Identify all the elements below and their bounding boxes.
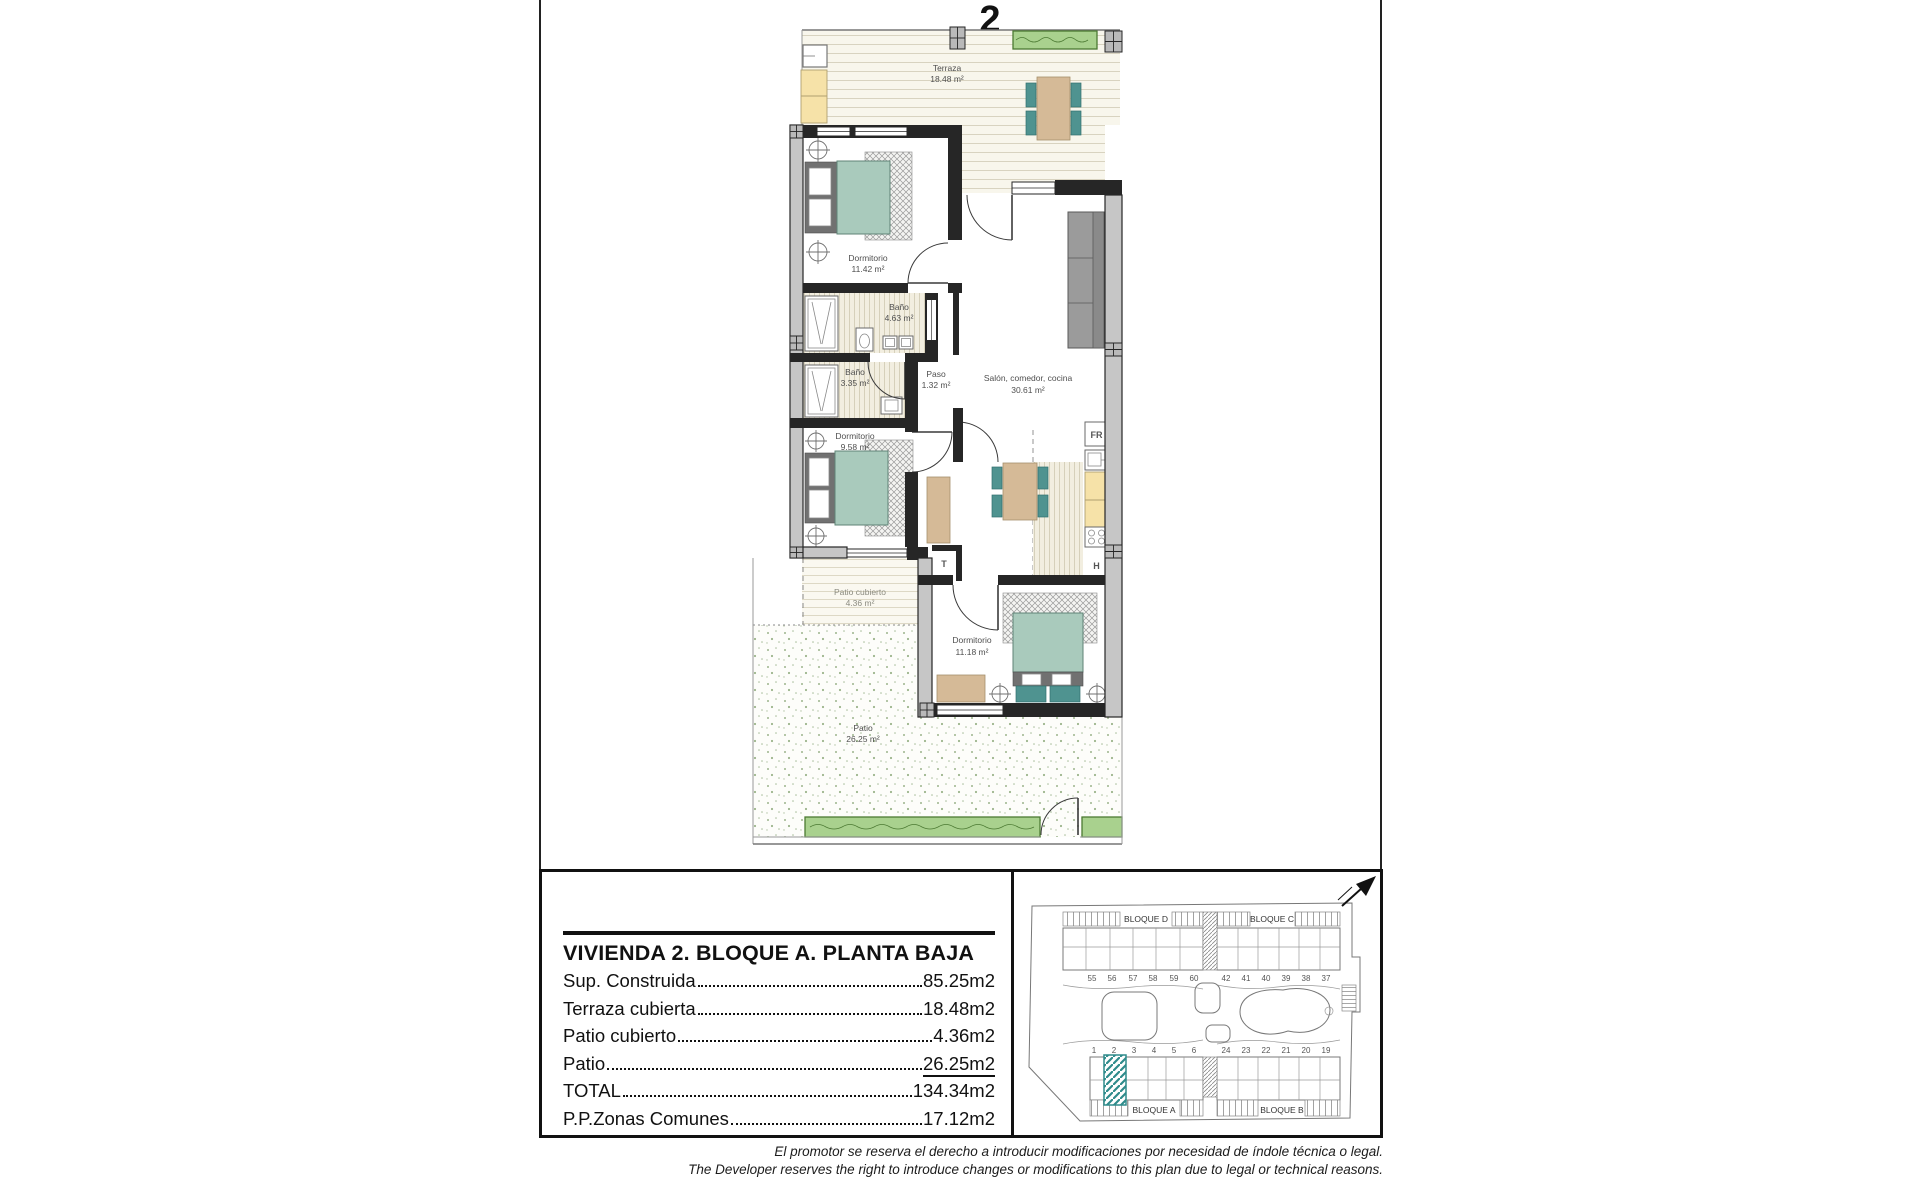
dotted-leader [678,1040,932,1042]
sofa [1068,212,1104,348]
row-label: P.P.Zonas Comunes [563,1108,729,1130]
bedroom3-door [953,585,998,630]
disclaimer-es: El promotor se reserva el derecho a intr… [640,1143,1383,1161]
bedroom-1: Dormitorio 11.42 m² [805,138,948,283]
dotted-leader [731,1123,922,1125]
living-room-label: Salón, comedor, cocina [984,373,1073,383]
paso-area: 1.32 m² [922,380,951,390]
bathroom-2: Baño 3.35 m² [803,362,905,418]
hall-mat [927,477,950,543]
bathroom-1: Baño 4.63 m² [803,293,925,353]
dotted-leader [698,1013,922,1015]
bathroom2-area: 3.35 m² [841,378,870,388]
terraza-label: Terraza [933,63,962,73]
row-label: Patio cubierto [563,1025,676,1047]
row-value: 18.48m2 [923,998,995,1020]
dotted-leader [607,1068,922,1070]
info-row-total: TOTAL 134.34m2 [563,1080,995,1108]
dotted-leader [623,1095,912,1097]
bathroom1-area: 4.63 m² [885,313,914,323]
site-plan-panel [1011,869,1383,1138]
bed-2 [805,451,888,525]
bedroom3-mat [937,675,985,702]
row-label: Patio [563,1053,605,1075]
bedroom1-door [908,243,948,283]
patio-cubierto: Patio cubierto 4.36 m² [802,558,918,625]
patio-cubierto-area: 4.36 m² [846,598,875,608]
bedroom1-label: Dormitorio [848,253,887,263]
info-row-patio-cubierto: Patio cubierto 4.36m2 [563,1025,995,1053]
patio-label: Patio [853,723,873,733]
bathroom1-label: Baño [889,302,909,312]
bedroom2-label: Dormitorio [835,431,874,441]
shower-2 [805,365,838,417]
row-value: 85.25m2 [923,970,995,992]
patio-cubierto-label: Patio cubierto [834,587,886,597]
patio-area: 26.25 m² [846,734,880,744]
bedroom-3: Dormitorio 11.18 m² [937,585,1108,705]
row-value: 26.25m2 [923,1053,995,1077]
row-label: Sup. Construida [563,970,696,992]
bed-1 [805,161,890,234]
terrace-cabinet [801,70,827,123]
living-room-area: 30.61 m² [1011,385,1045,395]
page: 2 Terraza 18.48 m² Patio cubierto 4.36 m… [0,0,1920,1200]
info-row-patio: Patio 26.25m2 [563,1053,995,1081]
bedroom3-area: 11.18 m² [956,647,989,657]
disclaimer-en: The Developer reserves the right to intr… [640,1161,1383,1179]
info-row-sup-construida: Sup. Construida 85.25m2 [563,970,995,998]
row-value: 4.36m2 [933,1025,995,1047]
info-panel: VIVIENDA 2. BLOQUE A. PLANTA BAJA Sup. C… [539,869,1014,1138]
hall-door [958,422,998,462]
toilet-1 [856,328,873,351]
bedroom3-label: Dormitorio [952,635,991,645]
entry-door [967,195,1012,240]
info-panel-rule [563,931,995,935]
bedroom1-area: 11.42 m² [852,264,885,274]
dotted-leader [698,985,922,987]
hob-label: H [1093,561,1100,571]
row-value: 17.12m2 [923,1108,995,1130]
bathroom2-label: Baño [845,367,865,377]
svg-text:FR: FR [1091,430,1103,440]
info-row-zonas-comunes: P.P.Zonas Comunes 17.12m2 [563,1108,995,1136]
row-label: TOTAL [563,1080,621,1102]
row-label: Terraza cubierta [563,998,696,1020]
shower-1 [805,296,838,351]
hedge-bottom-right [1082,817,1122,837]
terraza-area: 18.48 m² [930,74,964,84]
hedge-top [1013,31,1097,49]
living-room: Salón, comedor, cocina 30.61 m² FR H [927,195,1108,577]
wardrobe-label: T [941,559,947,569]
bedroom2-area: 9.58 m² [841,442,870,452]
paso: Paso 1.32 m² [922,369,951,390]
row-value: 134.34m2 [913,1080,995,1102]
bed-3 [1013,613,1083,702]
disclaimer: El promotor se reserva el derecho a intr… [640,1143,1383,1179]
info-row-terraza-cubierta: Terraza cubierta 18.48m2 [563,998,995,1026]
toilet-2 [881,397,902,414]
info-panel-title: VIVIENDA 2. BLOQUE A. PLANTA BAJA [563,941,995,966]
paso-label: Paso [926,369,946,379]
bedroom2-door [912,432,952,472]
